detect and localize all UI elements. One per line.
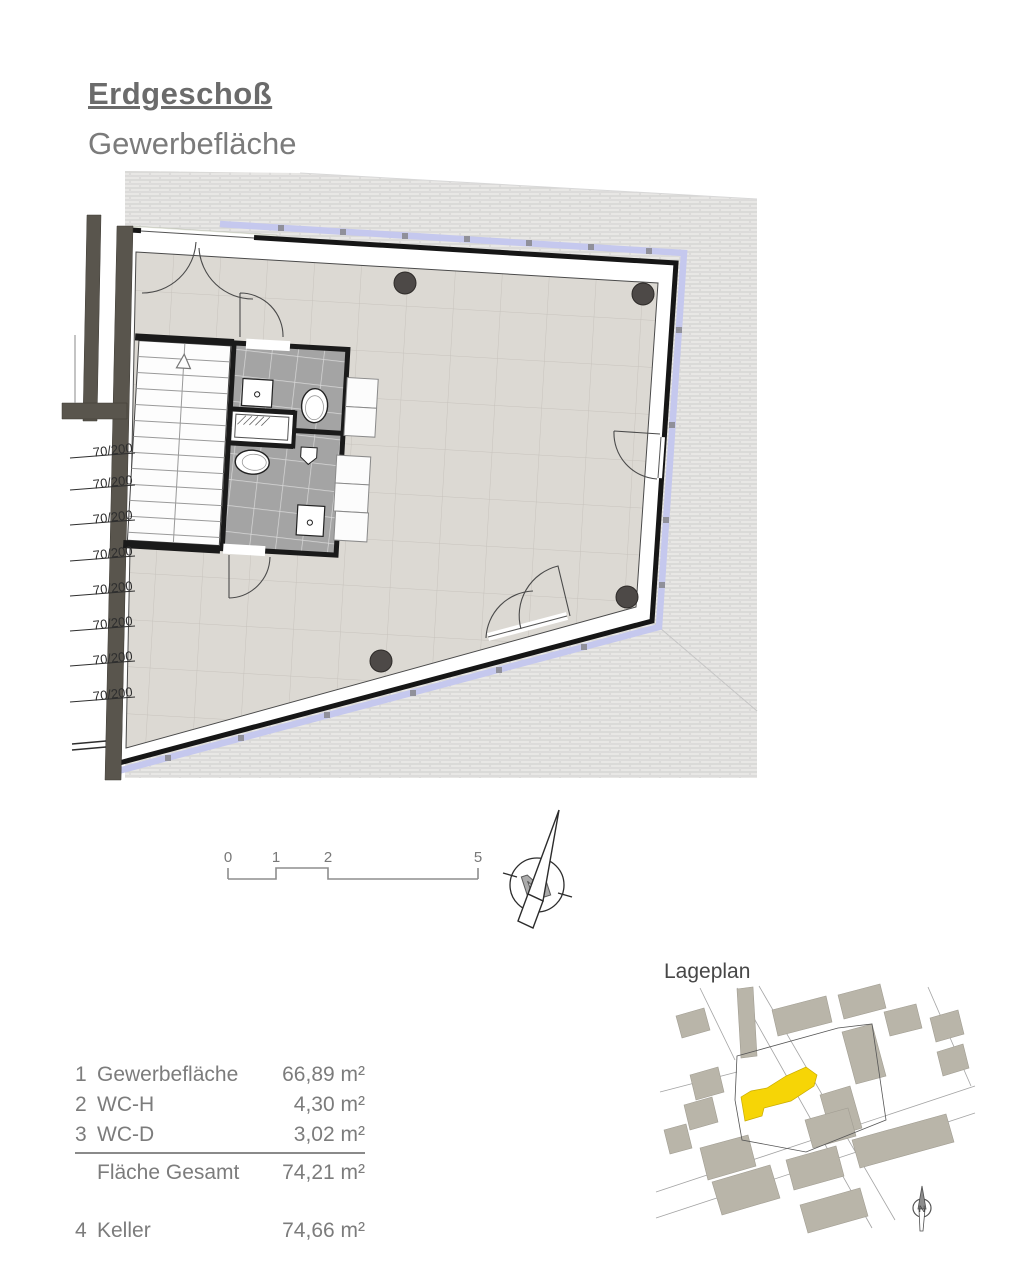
floorplan-page: Erdgeschoß Gewerbefläche (0, 0, 1024, 1277)
highlighted-building (741, 1067, 817, 1121)
row-value: 3,02 m² (294, 1120, 365, 1150)
row-value: 66,89 m² (282, 1060, 365, 1090)
row-label: Keller (97, 1216, 282, 1246)
row-number: 2 (75, 1090, 97, 1120)
table-basement-row: 4 Keller 74,66 m² (75, 1216, 365, 1246)
row-number: 3 (75, 1120, 97, 1150)
area-table: 1 Gewerbefläche 66,89 m² 2 WC-H 4,30 m² … (75, 1060, 365, 1246)
site-north-label: N (919, 1204, 926, 1214)
total-value: 74,21 m² (282, 1158, 365, 1188)
row-value: 74,66 m² (282, 1216, 365, 1246)
table-total-rule (75, 1152, 365, 1154)
table-total-row: Fläche Gesamt 74,21 m² (75, 1158, 365, 1188)
table-row: 1 Gewerbefläche 66,89 m² (75, 1060, 365, 1090)
table-row: 2 WC-H 4,30 m² (75, 1090, 365, 1120)
table-row: 3 WC-D 3,02 m² (75, 1120, 365, 1150)
row-number: 1 (75, 1060, 97, 1090)
row-number: 4 (75, 1216, 97, 1246)
row-label: WC-H (97, 1090, 294, 1120)
row-value: 4,30 m² (294, 1090, 365, 1120)
table-spacer (75, 1188, 365, 1216)
site-map-north-arrow: N (913, 1186, 931, 1231)
total-label: Fläche Gesamt (97, 1158, 282, 1188)
row-label: WC-D (97, 1120, 294, 1150)
row-label: Gewerbefläche (97, 1060, 282, 1090)
